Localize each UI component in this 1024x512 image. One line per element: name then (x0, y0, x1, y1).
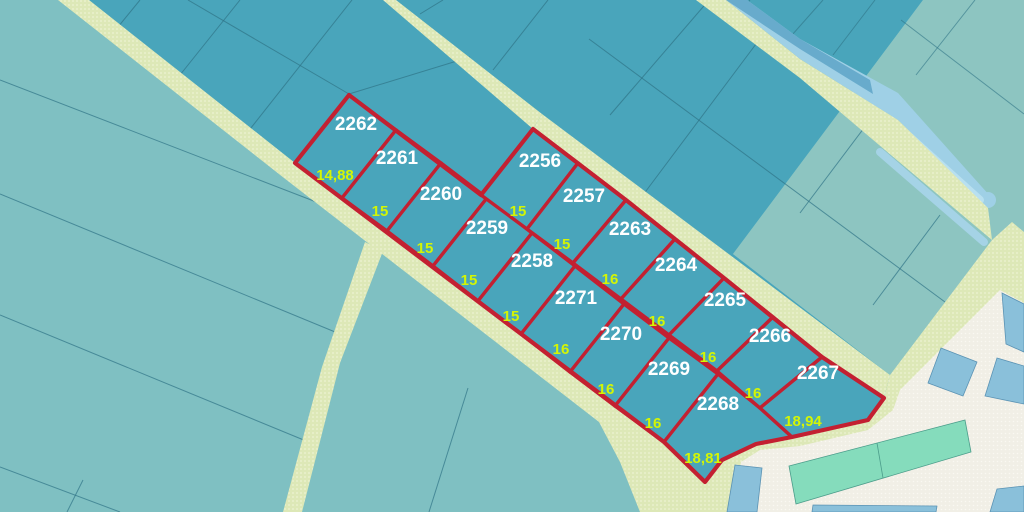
svg-text:16: 16 (602, 271, 619, 288)
svg-text:15: 15 (510, 203, 527, 220)
svg-text:18,94: 18,94 (784, 413, 822, 430)
svg-text:16: 16 (645, 415, 662, 432)
svg-text:15: 15 (503, 308, 520, 325)
svg-text:2263: 2263 (609, 219, 651, 240)
svg-text:2262: 2262 (335, 114, 377, 135)
svg-text:2267: 2267 (797, 363, 839, 384)
svg-text:2257: 2257 (563, 186, 605, 207)
svg-text:2268: 2268 (697, 394, 739, 415)
svg-text:2265: 2265 (704, 290, 747, 311)
svg-text:18,81: 18,81 (684, 450, 722, 467)
svg-text:15: 15 (554, 236, 571, 253)
svg-text:15: 15 (461, 272, 478, 289)
svg-text:14,88: 14,88 (316, 167, 354, 184)
svg-text:2271: 2271 (555, 288, 598, 309)
svg-text:16: 16 (700, 349, 717, 366)
svg-text:15: 15 (372, 203, 389, 220)
svg-text:2270: 2270 (600, 324, 642, 345)
svg-text:2256: 2256 (519, 151, 561, 172)
svg-text:2264: 2264 (655, 255, 698, 276)
svg-text:2258: 2258 (511, 251, 553, 272)
svg-text:16: 16 (745, 385, 762, 402)
svg-text:2269: 2269 (648, 359, 690, 380)
svg-text:2266: 2266 (749, 326, 791, 347)
svg-text:2261: 2261 (376, 148, 419, 169)
svg-text:2260: 2260 (420, 184, 462, 205)
svg-text:16: 16 (553, 341, 570, 358)
svg-text:15: 15 (417, 240, 434, 257)
svg-text:16: 16 (598, 381, 615, 398)
svg-text:16: 16 (649, 313, 666, 330)
svg-text:2259: 2259 (466, 218, 508, 239)
